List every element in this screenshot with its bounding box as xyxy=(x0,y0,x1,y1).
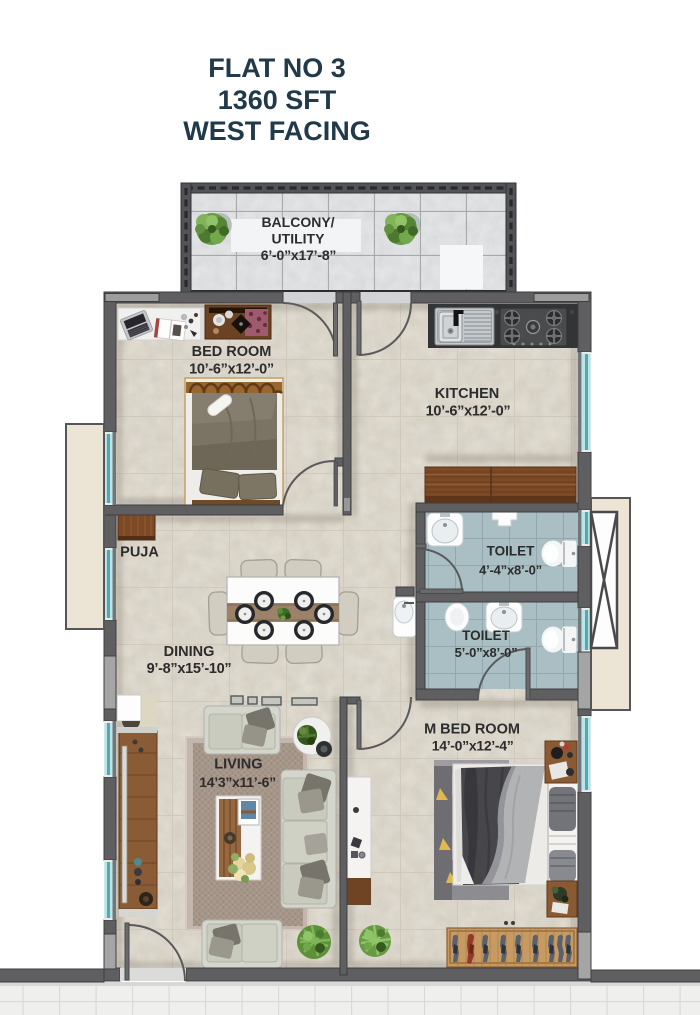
svg-text:KITCHEN: KITCHEN xyxy=(435,386,499,402)
svg-text:TOILET: TOILET xyxy=(462,628,511,643)
svg-text:5’-0”x8’-0”: 5’-0”x8’-0” xyxy=(455,645,518,660)
svg-text:BALCONY/: BALCONY/ xyxy=(261,214,334,230)
svg-text:BED ROOM: BED ROOM xyxy=(192,344,272,360)
svg-text:DINING: DINING xyxy=(164,644,215,660)
svg-text:14’3”x11’-6”: 14’3”x11’-6” xyxy=(199,774,276,790)
svg-text:9’-8”x15’-10”: 9’-8”x15’-10” xyxy=(147,661,232,677)
svg-text:UTILITY: UTILITY xyxy=(272,231,326,247)
svg-text:LIVING: LIVING xyxy=(214,757,262,773)
svg-text:10’-6”x12’-0”: 10’-6”x12’-0” xyxy=(189,362,274,378)
svg-text:PUJA: PUJA xyxy=(120,545,159,561)
svg-text:10’-6”x12’-0”: 10’-6”x12’-0” xyxy=(426,404,511,420)
svg-text:FLAT NO 3: FLAT NO 3 xyxy=(208,53,346,83)
svg-text:1360 SFT: 1360 SFT xyxy=(218,85,337,115)
svg-text:M BED ROOM: M BED ROOM xyxy=(424,722,520,738)
svg-text:14’-0”x12’-4”: 14’-0”x12’-4” xyxy=(432,738,514,754)
svg-text:TOILET: TOILET xyxy=(487,544,536,559)
svg-text:6’-0”x17’-8”: 6’-0”x17’-8” xyxy=(261,247,336,263)
svg-text:WEST FACING: WEST FACING xyxy=(183,116,371,146)
svg-text:4’-4”x8’-0”: 4’-4”x8’-0” xyxy=(479,563,542,578)
